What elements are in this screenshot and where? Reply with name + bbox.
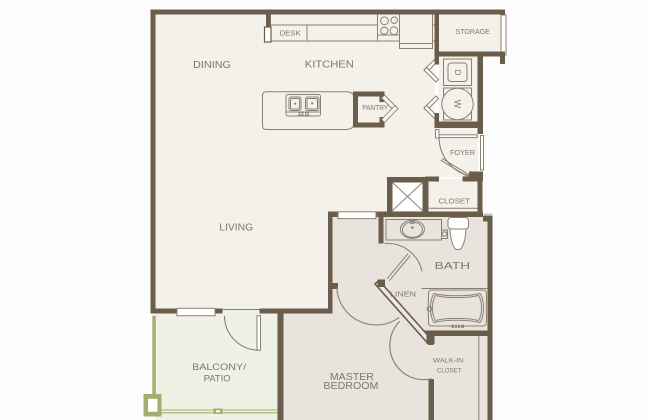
svg-text:BATH: BATH bbox=[435, 261, 471, 272]
svg-text:D: D bbox=[453, 70, 462, 76]
svg-text:DINING: DINING bbox=[193, 59, 231, 71]
svg-text:DESK: DESK bbox=[280, 28, 301, 37]
svg-text:CLOSET: CLOSET bbox=[439, 196, 471, 205]
svg-text:STORAGE: STORAGE bbox=[456, 27, 490, 36]
svg-text:FOYER: FOYER bbox=[450, 148, 475, 157]
svg-text:BALCONY/: BALCONY/ bbox=[192, 362, 246, 373]
svg-text:PANTRY: PANTRY bbox=[362, 103, 388, 112]
svg-text:BEDROOM: BEDROOM bbox=[323, 380, 378, 392]
svg-text:LINEN: LINEN bbox=[390, 289, 416, 298]
svg-text:LIVING: LIVING bbox=[219, 222, 253, 234]
svg-text:KITCHEN: KITCHEN bbox=[305, 59, 354, 71]
svg-text:W: W bbox=[453, 100, 463, 109]
svg-text:PATIO: PATIO bbox=[204, 373, 231, 384]
svg-text:CLOSET: CLOSET bbox=[437, 368, 462, 375]
svg-text:WALK-IN: WALK-IN bbox=[433, 357, 464, 364]
